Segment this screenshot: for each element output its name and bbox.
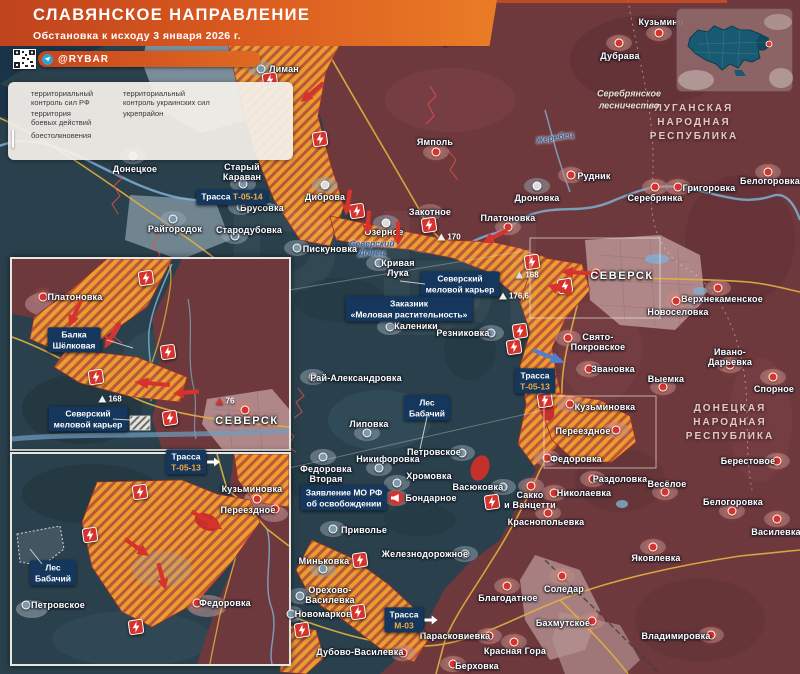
telegram-icon [42, 54, 53, 65]
hex-blue-icon [104, 88, 118, 101]
badge-lightning-icon [12, 130, 26, 143]
channel-handle: @RYBAR [58, 54, 109, 65]
legend-label: территориальный контроль украинских сил [123, 88, 210, 108]
hex-red-icon [12, 88, 26, 101]
line-red-icon [104, 108, 118, 121]
map-subtitle: Обстановка к исходу 3 января 2026 г. [33, 30, 241, 42]
legend-label: территориальный контроль сил РФ [31, 88, 93, 108]
qr-code-icon [13, 49, 36, 69]
top-accent-strip [497, 0, 727, 3]
legend-item: укрепрайон [104, 108, 163, 121]
hex-hatch-icon [12, 108, 26, 121]
war-map-slavyansk-direction: РЫ [0, 0, 800, 674]
legend-label: боестолкновения [31, 130, 91, 140]
legend-label: укрепрайон [123, 108, 163, 118]
channel-bar[interactable]: @RYBAR [38, 51, 260, 67]
ukraine-locator-map [676, 8, 793, 92]
legend-item: территория боевых действий [12, 108, 91, 128]
locator-marker [766, 41, 772, 47]
ukraine-locator-inset [676, 8, 793, 97]
map-title: СЛАВЯНСКОЕ НАПРАВЛЕНИЕ [33, 6, 310, 25]
legend-item: боестолкновения [12, 130, 91, 143]
legend-label: территория боевых действий [31, 108, 91, 128]
legend-item: территориальный контроль украинских сил [104, 88, 210, 108]
legend-panel: территориальный контроль сил РФтерритори… [8, 82, 293, 160]
legend-item: территориальный контроль сил РФ [12, 88, 93, 108]
